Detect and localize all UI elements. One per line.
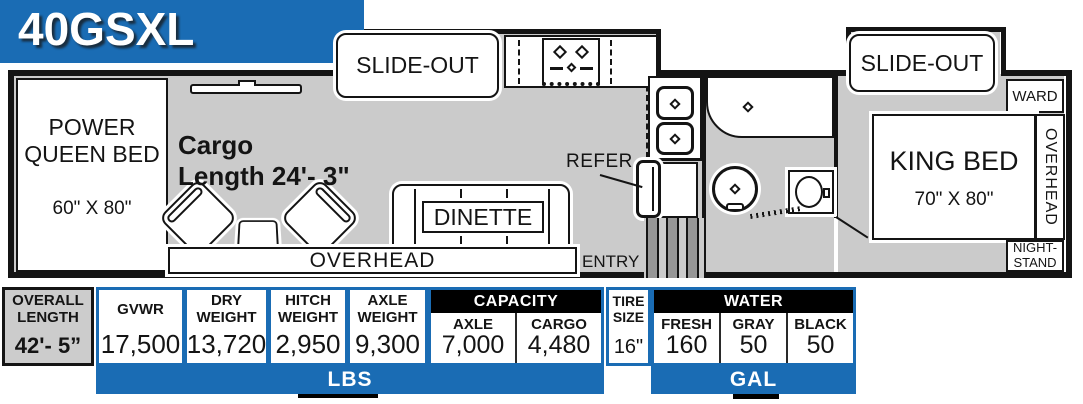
spec-capacity-cargo: CARGO 4,480 — [515, 313, 601, 363]
wall-top-right — [1002, 70, 1072, 76]
spec-capacity-group: CAPACITY AXLE 7,000 CARGO 4,480 — [428, 287, 604, 366]
stove-control — [580, 67, 593, 70]
spec-tire-size: TIRE SIZE 16" — [606, 287, 651, 366]
wall-bump2-top — [846, 27, 1006, 32]
kitchen-sink-icon — [656, 122, 694, 155]
bathroom-sink-icon — [795, 176, 823, 208]
overall-length-label: OVERALL — [12, 293, 84, 310]
kitchen-sink-icon — [656, 86, 694, 120]
spec-axle-weight: AXLE WEIGHT 9,300 — [347, 287, 428, 366]
queen-bed: POWER QUEEN BED 60" X 80" — [16, 78, 168, 272]
toilet-drain — [729, 183, 740, 194]
step — [666, 218, 679, 278]
nightstand-label2: STAND — [1013, 256, 1056, 271]
slide-out-front: SLIDE-OUT — [336, 33, 499, 98]
slide-out-front-label: SLIDE-OUT — [356, 52, 479, 79]
water-fresh-value: 160 — [666, 333, 708, 363]
tv-mount — [238, 80, 256, 86]
spec-water-gray: GRAY 50 — [719, 313, 786, 363]
nightstand: NIGHT- STAND — [1006, 240, 1064, 272]
queen-bed-label: POWER — [49, 114, 136, 141]
spec-water-group: WATER FRESH 160 GRAY 50 BLACK 50 — [651, 287, 856, 366]
tire-size-label2: SIZE — [613, 310, 644, 326]
chair-console — [237, 220, 279, 250]
tire-size-value: 16" — [614, 337, 643, 363]
shower-icon — [706, 76, 834, 138]
wall-bump2-right — [1001, 27, 1006, 76]
lbs-unit-bar: LBS — [96, 366, 604, 394]
king-bed: KING BED 70" X 80" — [872, 114, 1036, 240]
spec-gvwr: GVWR 17,500 — [96, 287, 185, 366]
wall-right — [1066, 70, 1072, 278]
capacity-header: CAPACITY — [431, 290, 601, 313]
cushion-divider — [548, 189, 550, 249]
tire-size-label: TIRE — [613, 294, 645, 310]
water-black-value: 50 — [807, 333, 835, 363]
king-bed-label: KING BED — [889, 146, 1018, 177]
cargo-line1: Cargo — [178, 130, 350, 161]
drain-icon — [742, 101, 753, 112]
wall-top-left — [8, 70, 338, 76]
dinette-label: DINETTE — [434, 204, 532, 231]
lbs-label: LBS — [328, 368, 373, 392]
overall-length-label2: LENGTH — [17, 310, 79, 327]
wardrobe: WARD — [1006, 79, 1064, 113]
cushion-divider — [414, 189, 416, 249]
dry-weight-value: 13,720 — [187, 331, 267, 363]
step — [646, 218, 659, 278]
model-banner: 40GSXL — [0, 0, 364, 63]
spec-capacity-axle: AXLE 7,000 — [431, 313, 515, 363]
burner-icon — [567, 63, 577, 73]
king-bed-size: 70" X 80" — [915, 189, 994, 211]
hitch-weight-label: HITCH — [285, 293, 331, 310]
slide-out-bedroom-label: SLIDE-OUT — [861, 50, 984, 77]
burner-icon — [575, 45, 589, 59]
step — [686, 218, 699, 278]
axle-weight-value: 9,300 — [355, 331, 420, 363]
gal-label: GAL — [730, 368, 777, 392]
fridge-handle — [652, 167, 655, 211]
dinette-label-box: DINETTE — [422, 201, 544, 233]
model-name: 40GSXL — [18, 2, 194, 56]
cargo-line2: Length 24'- 3" — [178, 161, 350, 192]
overhead-cabinet-garage: OVERHEAD — [168, 247, 577, 274]
floorplan-page: 40GSXL POWER QUEEN BED 60" X 80" Cargo L… — [0, 0, 1083, 404]
wall-bath-bedroom — [834, 74, 838, 218]
entry-label: ENTRY — [582, 253, 639, 272]
stove-control — [550, 67, 563, 70]
spec-water-fresh: FRESH 160 — [654, 313, 719, 363]
spec-overall-length: OVERALL LENGTH 42'- 5” — [2, 287, 94, 366]
queen-bed-label2: QUEEN BED — [24, 141, 159, 168]
ward-label: WARD — [1012, 88, 1057, 105]
stove-icon — [542, 38, 600, 86]
axle-weight-label: AXLE — [367, 293, 407, 310]
counter-dash-left — [518, 40, 520, 84]
drain-icon — [669, 133, 680, 144]
dry-weight-label: DRY — [211, 293, 242, 310]
overhead-bedroom-label: OVERHEAD — [1041, 128, 1059, 226]
capacity-cargo-label: CARGO — [531, 313, 587, 333]
toilet-icon — [712, 166, 758, 212]
capacity-axle-value: 7,000 — [442, 333, 505, 363]
queen-bed-size: 60" X 80" — [53, 198, 132, 220]
hitch-weight-value: 2,950 — [275, 331, 340, 363]
gal-unit-bar: GAL — [651, 366, 856, 394]
faucet-icon — [823, 188, 830, 198]
water-black-label: BLACK — [794, 313, 847, 333]
hitch-weight-label2: WEIGHT — [278, 310, 338, 327]
nightstand-label: NIGHT- — [1013, 241, 1057, 256]
counter-dash-right — [610, 40, 612, 84]
burner-icon — [553, 45, 567, 59]
overhead-cabinet-bedroom: OVERHEAD — [1035, 114, 1065, 240]
toilet-base — [726, 203, 744, 211]
cargo-length-label: Cargo Length 24'- 3" — [178, 130, 350, 191]
water-header: WATER — [654, 290, 853, 313]
spec-dry-weight: DRY WEIGHT 13,720 — [184, 287, 269, 366]
spec-water-black: BLACK 50 — [786, 313, 853, 363]
spec-hitch-weight: HITCH WEIGHT 2,950 — [268, 287, 348, 366]
gvwr-value: 17,500 — [101, 331, 181, 363]
refer-label: REFER — [566, 152, 633, 173]
water-gray-value: 50 — [740, 333, 768, 363]
drain-icon — [669, 98, 680, 109]
overhead-garage-label: OVERHEAD — [310, 249, 436, 273]
axle-weight-label2: WEIGHT — [358, 310, 418, 327]
cabinet — [660, 162, 698, 218]
dry-weight-label2: WEIGHT — [197, 310, 257, 327]
capacity-axle-label: AXLE — [453, 313, 493, 333]
wall-left — [8, 70, 14, 278]
water-fresh-label: FRESH — [661, 313, 712, 333]
tv-icon — [190, 84, 302, 94]
slide-out-bedroom: SLIDE-OUT — [849, 34, 995, 92]
refrigerator-icon — [636, 160, 661, 218]
entry-steps — [644, 218, 704, 278]
overall-length-value: 42'- 5” — [15, 335, 81, 363]
water-gray-label: GRAY — [733, 313, 775, 333]
capacity-cargo-value: 4,480 — [528, 333, 591, 363]
gvwr-label: GVWR — [117, 302, 164, 319]
